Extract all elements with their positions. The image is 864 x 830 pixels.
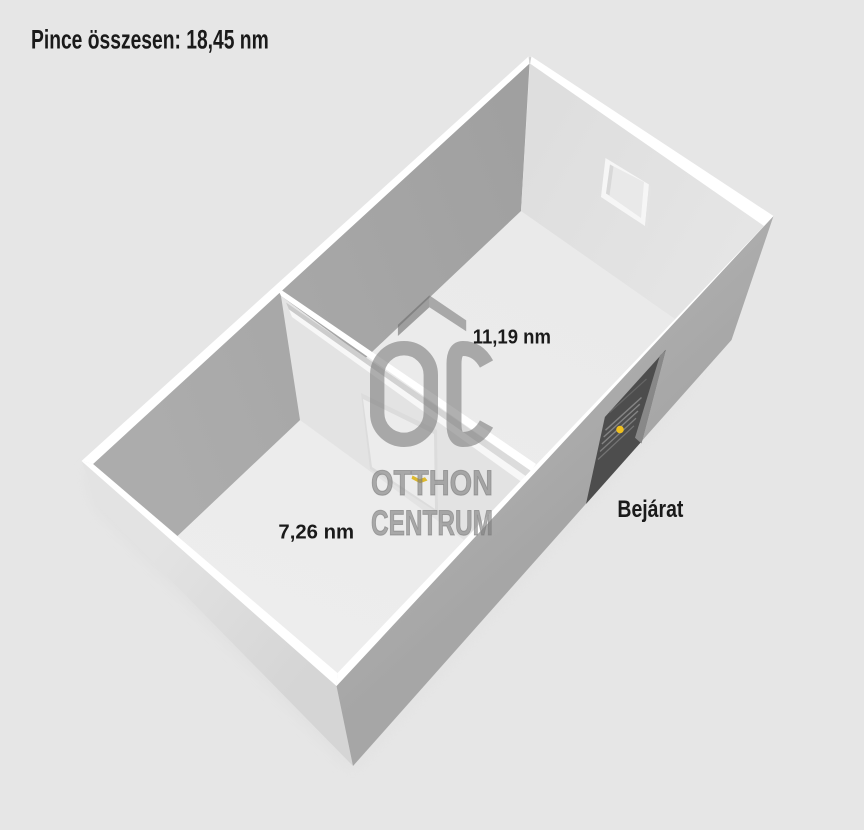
svg-text:CENTRUM: CENTRUM: [371, 504, 493, 543]
svg-text:OTTHON: OTTHON: [371, 464, 493, 503]
svg-text:Bejárat: Bejárat: [617, 496, 683, 523]
svg-text:7,26 nm: 7,26 nm: [278, 522, 354, 544]
svg-text:Pince összesen: 18,45 nm: Pince összesen: 18,45 nm: [31, 25, 269, 55]
svg-text:11,19 nm: 11,19 nm: [473, 327, 551, 349]
